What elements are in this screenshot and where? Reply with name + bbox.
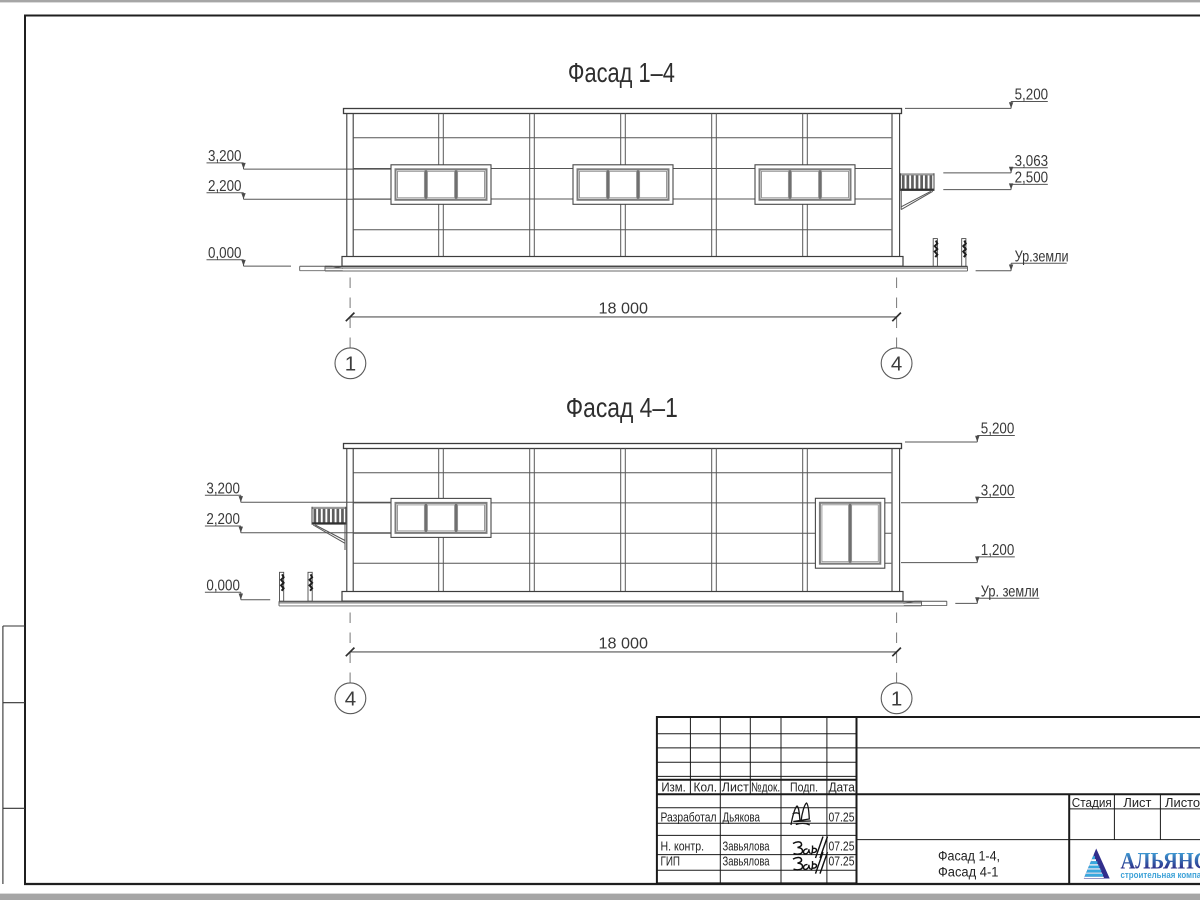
svg-text:ГИП: ГИП xyxy=(661,855,681,869)
svg-text:5,200: 5,200 xyxy=(1015,87,1049,104)
svg-text:Фасад 1-4,: Фасад 1-4, xyxy=(938,849,1000,864)
svg-text:Фасад 1–4: Фасад 1–4 xyxy=(568,57,675,88)
svg-text:1,200: 1,200 xyxy=(981,542,1015,559)
svg-text:№док.: №док. xyxy=(751,779,780,794)
svg-text:1: 1 xyxy=(345,353,356,376)
svg-text:4: 4 xyxy=(891,353,902,376)
svg-text:3,200: 3,200 xyxy=(981,483,1015,500)
svg-text:2,500: 2,500 xyxy=(1015,170,1049,187)
svg-text:Подп.: Подп. xyxy=(790,779,818,794)
svg-text:2,200: 2,200 xyxy=(208,178,242,195)
svg-text:3,200: 3,200 xyxy=(208,148,242,165)
svg-text:1: 1 xyxy=(891,688,902,711)
svg-text:Стадия: Стадия xyxy=(1072,795,1112,810)
svg-text:5,200: 5,200 xyxy=(981,421,1015,438)
svg-text:Листов: Листов xyxy=(1165,795,1200,810)
svg-text:Фасад 4–1: Фасад 4–1 xyxy=(566,392,678,423)
svg-text:Ур. земли: Ур. земли xyxy=(981,584,1039,601)
svg-text:Лист: Лист xyxy=(1123,795,1151,810)
svg-text:3,200: 3,200 xyxy=(206,481,240,498)
svg-text:18 000: 18 000 xyxy=(599,301,649,318)
svg-text:07.25: 07.25 xyxy=(829,854,855,869)
svg-text:Кол.: Кол. xyxy=(694,779,718,794)
svg-text:строительная компания: строительная компания xyxy=(1121,870,1200,880)
svg-text:Дата: Дата xyxy=(828,779,855,794)
svg-text:Завьялова: Завьялова xyxy=(723,839,770,853)
svg-text:18 000: 18 000 xyxy=(599,636,649,653)
svg-text:Н. контр.: Н. контр. xyxy=(661,839,705,853)
svg-text:4: 4 xyxy=(345,688,356,711)
svg-text:Лист: Лист xyxy=(722,779,749,794)
svg-text:0,000: 0,000 xyxy=(206,577,240,594)
svg-text:3,063: 3,063 xyxy=(1015,153,1049,170)
svg-text:Фасад 4-1: Фасад 4-1 xyxy=(938,865,999,880)
svg-text:Дьякова: Дьякова xyxy=(723,810,761,824)
svg-text:Разработал: Разработал xyxy=(661,810,717,824)
svg-text:2,200: 2,200 xyxy=(206,511,240,528)
svg-text:Завьялова: Завьялова xyxy=(723,855,770,869)
svg-text:07.25: 07.25 xyxy=(829,809,855,824)
svg-text:Изм.: Изм. xyxy=(661,779,686,794)
svg-text:0,000: 0,000 xyxy=(208,245,242,262)
svg-text:07.25: 07.25 xyxy=(829,838,855,853)
svg-text:Ур.земли: Ур.земли xyxy=(1015,249,1069,266)
